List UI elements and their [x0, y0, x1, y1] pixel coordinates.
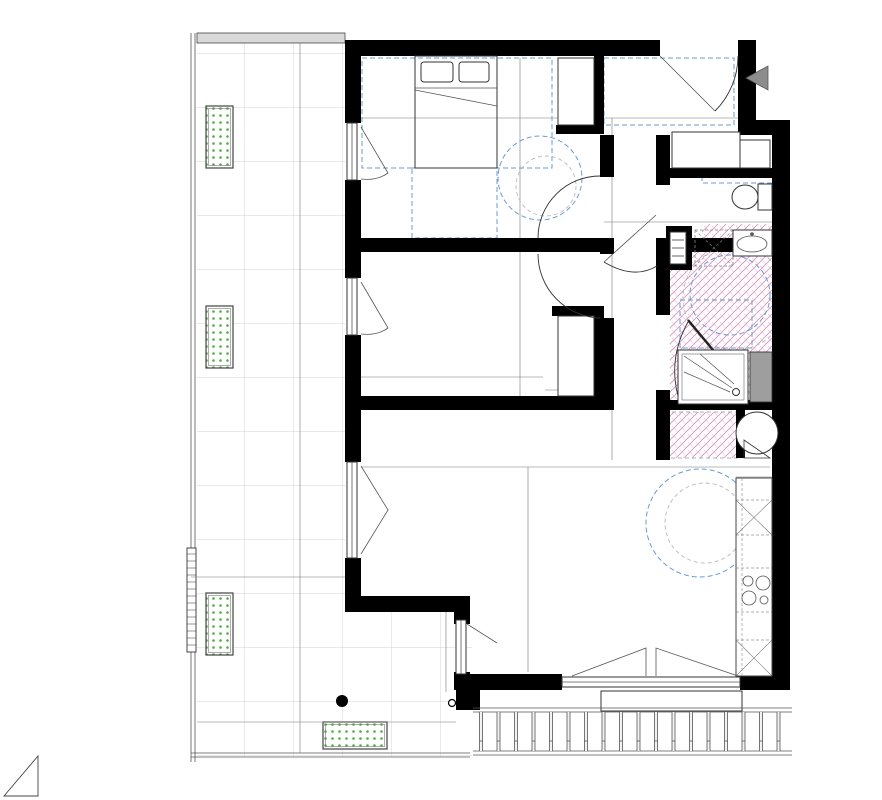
section-mark [4, 756, 38, 796]
south-railing [473, 708, 792, 755]
bed [415, 56, 497, 168]
window-chambre2 [347, 278, 388, 335]
window-chambre1 [347, 123, 388, 180]
closet-chambre1 [558, 58, 594, 125]
toilet [732, 184, 772, 210]
window-sejour-west [347, 462, 388, 558]
jardiniere-4 [323, 722, 387, 749]
jardiniere-1 [206, 106, 233, 168]
chambre1-door-arc [538, 176, 600, 238]
ceiling-circle-ch1 [498, 136, 582, 220]
closet-entree [672, 132, 740, 168]
jardiniere-3 [206, 593, 233, 655]
floor-plan [0, 0, 882, 800]
structural-column [336, 695, 348, 707]
kitchen-counter [736, 478, 772, 676]
pillow [459, 62, 489, 82]
duct-box [740, 140, 770, 168]
pare-vue-screen [197, 33, 345, 43]
brise-soleil-vertical [187, 548, 196, 652]
radiator [666, 226, 692, 270]
pillow [421, 62, 453, 82]
window-sejour-corner [456, 620, 497, 674]
closet-chambre2 [558, 316, 594, 396]
entry-door-arc [715, 56, 738, 111]
jardiniere-2 [206, 306, 233, 368]
utility-box [750, 352, 772, 402]
bathroom-sink [733, 230, 772, 256]
railing-bars [474, 712, 792, 751]
drain-point [449, 700, 456, 707]
shower [678, 350, 748, 404]
window-bay-south [562, 648, 742, 711]
